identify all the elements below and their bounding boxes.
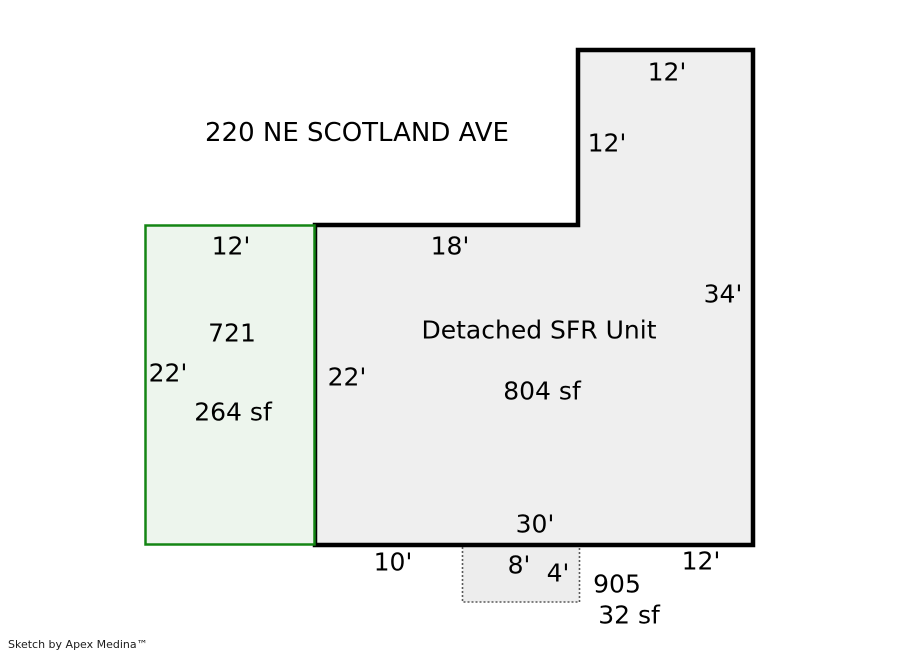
sketch-canvas: 220 NE SCOTLAND AVE 12' 12' 18' 34' 22' … — [0, 0, 900, 660]
dim-main-top-left: 18' — [431, 234, 470, 259]
main-unit-name: Detached SFR Unit — [422, 318, 657, 343]
dim-main-bottom-left: 10' — [374, 550, 413, 575]
dim-main-tower-left: 12' — [588, 131, 627, 156]
dim-main-bottom: 30' — [516, 512, 555, 537]
dim-main-left: 22' — [328, 365, 367, 390]
address-label: 220 NE SCOTLAND AVE — [205, 120, 509, 146]
dim-addition-top: 12' — [212, 234, 251, 259]
main-unit-area: 804 sf — [503, 379, 581, 404]
dim-main-right: 34' — [704, 282, 743, 307]
dim-patio-width: 8' — [508, 553, 531, 578]
dim-main-bottom-right: 12' — [682, 549, 721, 574]
addition-area: 264 sf — [194, 400, 272, 425]
patio-area: 32 sf — [598, 603, 660, 628]
dim-addition-left: 22' — [149, 361, 188, 386]
addition-code: 721 — [208, 321, 256, 346]
dim-patio-height: 4' — [547, 561, 570, 586]
footer-credit: Sketch by Apex Medina™ — [8, 639, 148, 650]
patio-code: 905 — [593, 572, 641, 597]
dim-main-tower-top: 12' — [648, 60, 687, 85]
